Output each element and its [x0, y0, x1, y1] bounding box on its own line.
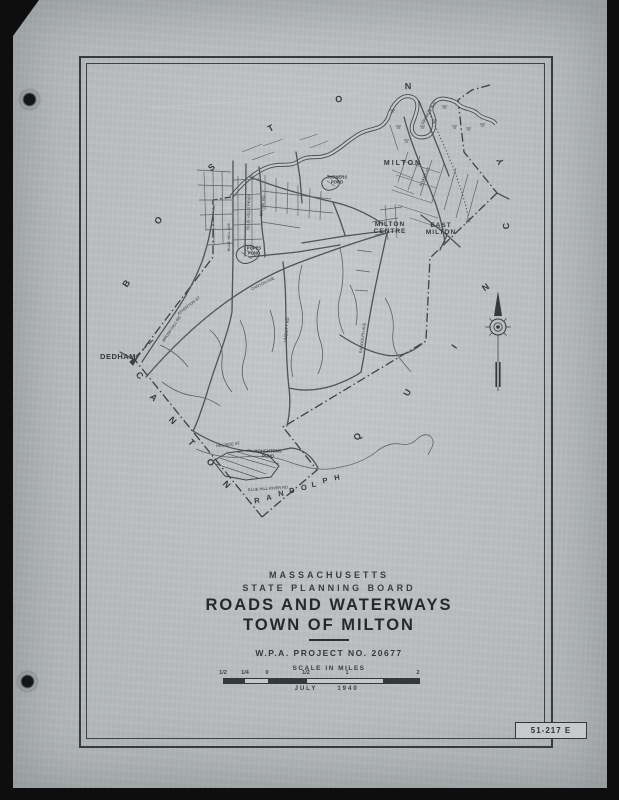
map-linework	[0, 0, 619, 800]
plate-number: 51-217 E	[531, 726, 571, 735]
title-town: TOWN OF MILTON	[139, 616, 519, 635]
title-main: ROADS AND WATERWAYS	[139, 596, 519, 615]
compass-rose	[486, 291, 511, 391]
scanned-map-sheet: BOSTONQUINCYCANTONRANDOLPHDEDHAMMILTONMI…	[0, 0, 619, 800]
title-state: MASSACHUSETTS	[139, 570, 519, 580]
title-underline	[309, 639, 349, 641]
neponset-river	[231, 96, 496, 197]
title-block: MASSACHUSETTS STATE PLANNING BOARD ROADS…	[139, 570, 519, 672]
dedham-arrow	[130, 340, 153, 365]
town-boundary	[135, 85, 497, 517]
scale-title: SCALE IN MILES	[139, 665, 519, 672]
plate-number-box: 51-217 E	[515, 722, 587, 739]
wpa-project-line: W.P.A. PROJECT NO. 20677	[139, 648, 519, 658]
blue-hills-trails	[160, 285, 357, 392]
ponds	[213, 177, 339, 481]
title-agency: STATE PLANNING BOARD	[139, 583, 519, 593]
